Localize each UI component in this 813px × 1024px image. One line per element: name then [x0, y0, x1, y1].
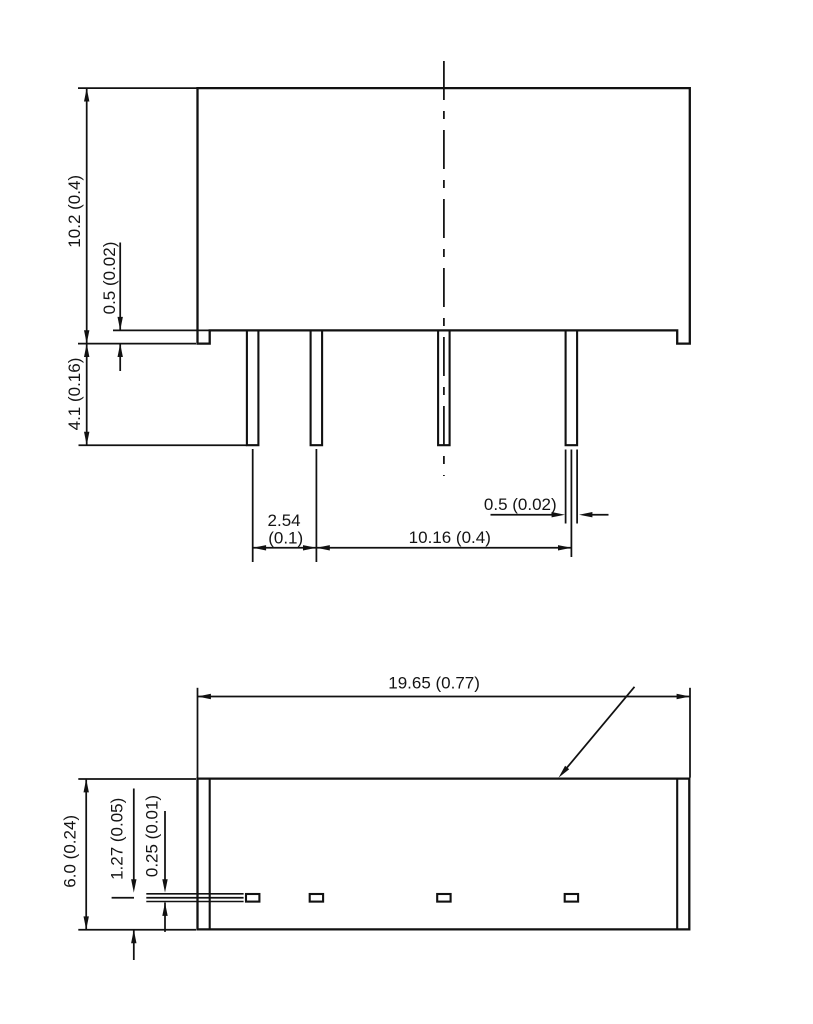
svg-text:2.54: 2.54 — [268, 511, 301, 530]
svg-text:0.5 (0.02): 0.5 (0.02) — [100, 242, 119, 315]
svg-text:10.16 (0.4): 10.16 (0.4) — [409, 528, 491, 547]
svg-text:10.2 (0.4): 10.2 (0.4) — [65, 175, 84, 248]
svg-text:4.1 (0.16): 4.1 (0.16) — [65, 358, 84, 431]
svg-text:0.25 (0.01): 0.25 (0.01) — [142, 795, 161, 877]
svg-text:1.27 (0.05): 1.27 (0.05) — [107, 798, 126, 880]
svg-text:6.0 (0.24): 6.0 (0.24) — [60, 815, 79, 888]
svg-text:(0.1): (0.1) — [268, 529, 303, 548]
svg-text:0.5 (0.02): 0.5 (0.02) — [484, 495, 557, 514]
svg-text:19.65 (0.77): 19.65 (0.77) — [388, 673, 480, 692]
